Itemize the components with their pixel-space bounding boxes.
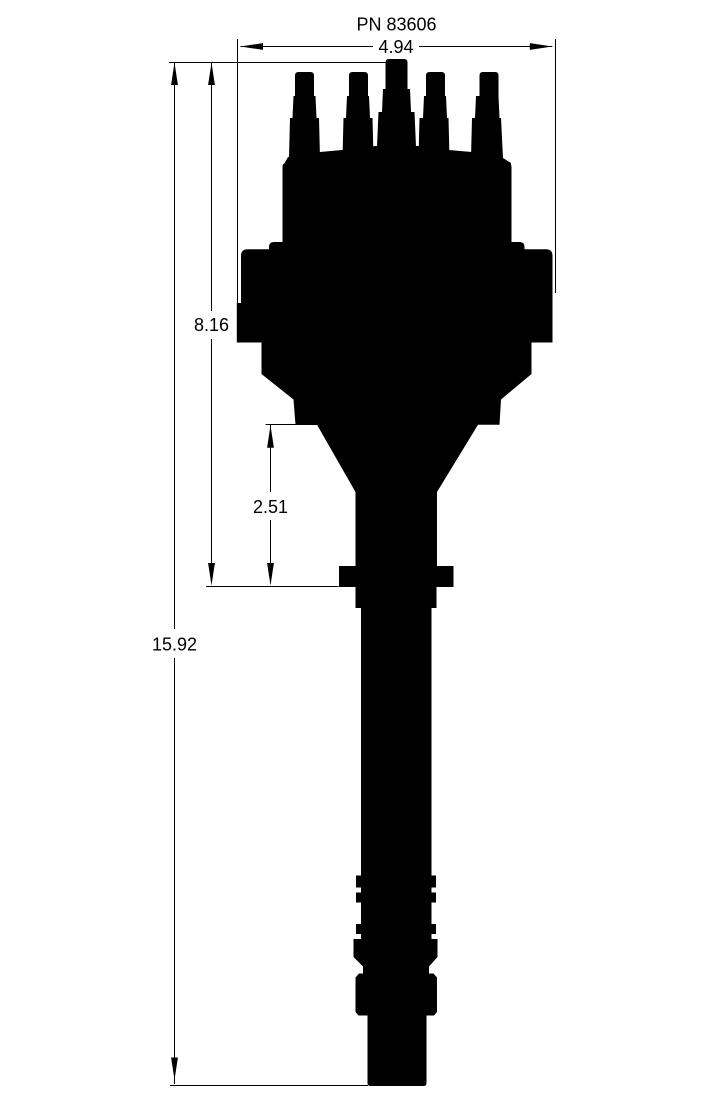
svg-text:15.92: 15.92 (152, 635, 197, 655)
svg-text:8.16: 8.16 (194, 315, 229, 335)
svg-text:PN 83606: PN 83606 (356, 15, 436, 35)
svg-text:2.51: 2.51 (253, 497, 288, 517)
svg-text:4.94: 4.94 (378, 37, 413, 57)
